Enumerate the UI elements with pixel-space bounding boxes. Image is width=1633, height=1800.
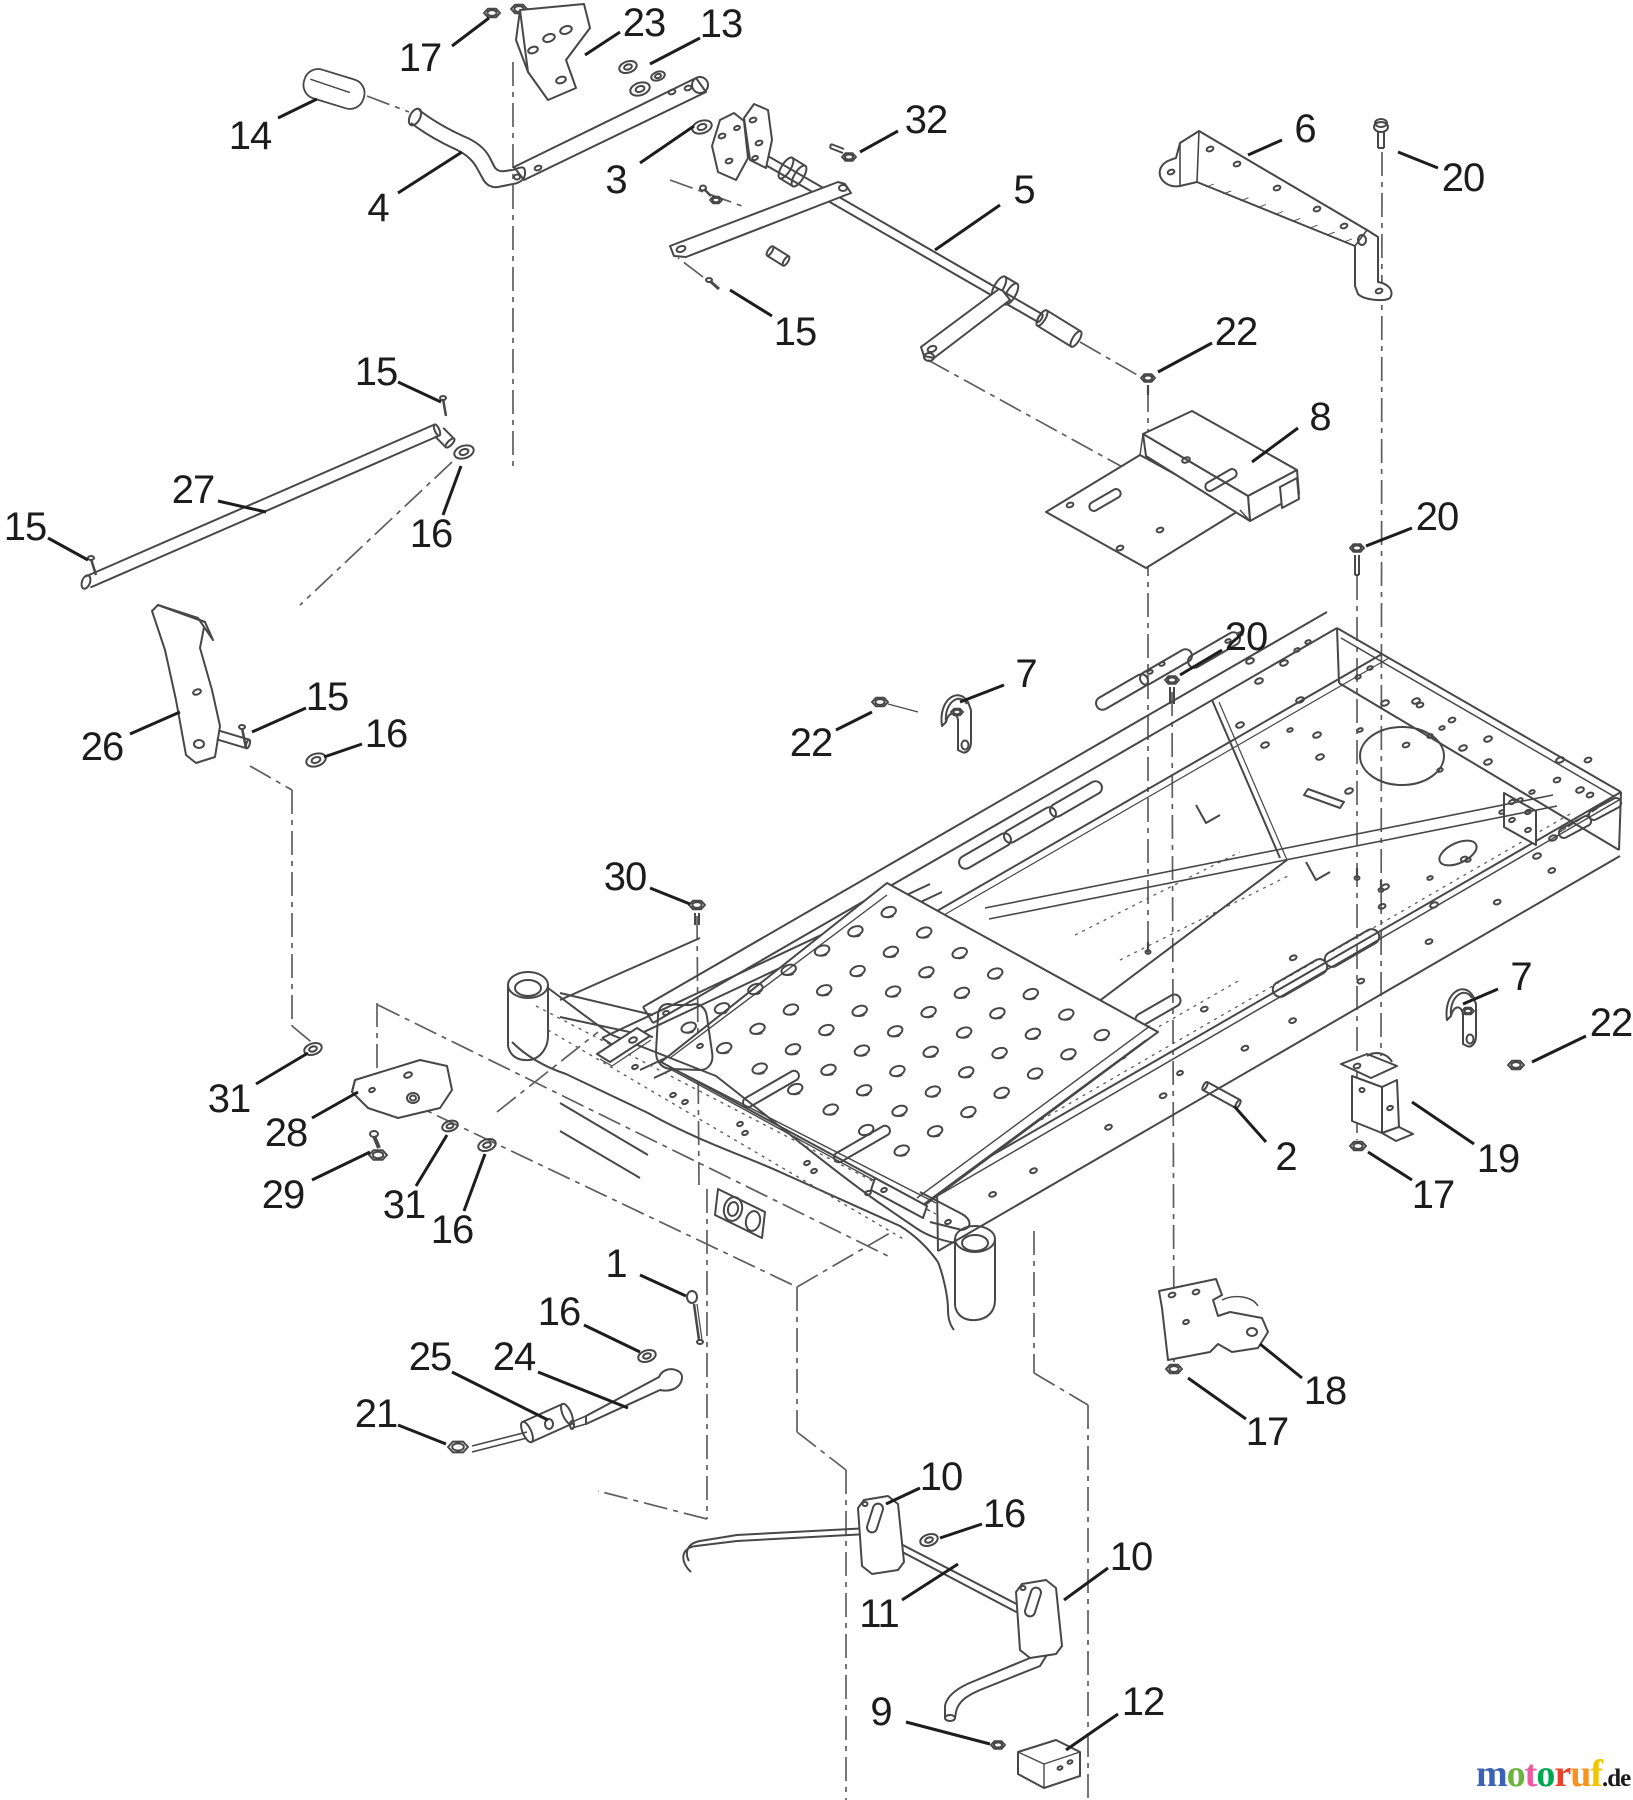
svg-text:13: 13 — [700, 2, 743, 46]
svg-text:16: 16 — [410, 512, 453, 556]
svg-text:30: 30 — [604, 855, 647, 899]
svg-text:18: 18 — [1304, 1369, 1347, 1413]
svg-text:16: 16 — [538, 1290, 581, 1334]
svg-text:10: 10 — [1110, 1535, 1153, 1579]
svg-text:26: 26 — [81, 725, 124, 769]
svg-text:20: 20 — [1442, 156, 1485, 200]
svg-text:4: 4 — [367, 186, 389, 230]
svg-text:21: 21 — [355, 1392, 398, 1436]
svg-text:27: 27 — [172, 468, 215, 512]
svg-text:16: 16 — [431, 1208, 474, 1252]
svg-text:7: 7 — [1015, 652, 1036, 696]
svg-text:20: 20 — [1225, 615, 1268, 659]
svg-text:19: 19 — [1477, 1137, 1520, 1181]
svg-text:16: 16 — [983, 1492, 1026, 1536]
svg-text:9: 9 — [870, 1690, 891, 1734]
svg-text:28: 28 — [265, 1111, 308, 1155]
svg-text:17: 17 — [399, 36, 442, 80]
svg-text:6: 6 — [1294, 107, 1315, 151]
svg-text:12: 12 — [1122, 1680, 1165, 1724]
svg-text:23: 23 — [623, 1, 666, 45]
svg-text:15: 15 — [4, 505, 47, 549]
svg-text:31: 31 — [208, 1077, 251, 1121]
svg-text:14: 14 — [229, 114, 272, 158]
svg-text:15: 15 — [774, 310, 817, 354]
svg-text:29: 29 — [262, 1173, 305, 1217]
svg-text:15: 15 — [355, 350, 398, 394]
svg-text:31: 31 — [383, 1183, 426, 1227]
svg-text:3: 3 — [605, 158, 626, 202]
svg-text:8: 8 — [1309, 395, 1330, 439]
svg-text:17: 17 — [1246, 1410, 1289, 1454]
svg-text:22: 22 — [790, 721, 833, 765]
svg-text:22: 22 — [1215, 310, 1258, 354]
svg-text:5: 5 — [1013, 168, 1034, 212]
svg-text:16: 16 — [365, 712, 408, 756]
svg-text:20: 20 — [1416, 495, 1459, 539]
svg-text:2: 2 — [1275, 1135, 1296, 1179]
svg-text:15: 15 — [306, 675, 349, 719]
svg-text:10: 10 — [920, 1455, 963, 1499]
svg-text:24: 24 — [493, 1335, 536, 1379]
svg-text:22: 22 — [1590, 1001, 1633, 1045]
svg-text:32: 32 — [905, 98, 948, 142]
svg-text:11: 11 — [859, 1592, 899, 1636]
svg-text:17: 17 — [1412, 1173, 1455, 1217]
svg-text:7: 7 — [1510, 955, 1531, 999]
svg-text:1: 1 — [605, 1242, 626, 1286]
svg-text:25: 25 — [409, 1335, 452, 1379]
